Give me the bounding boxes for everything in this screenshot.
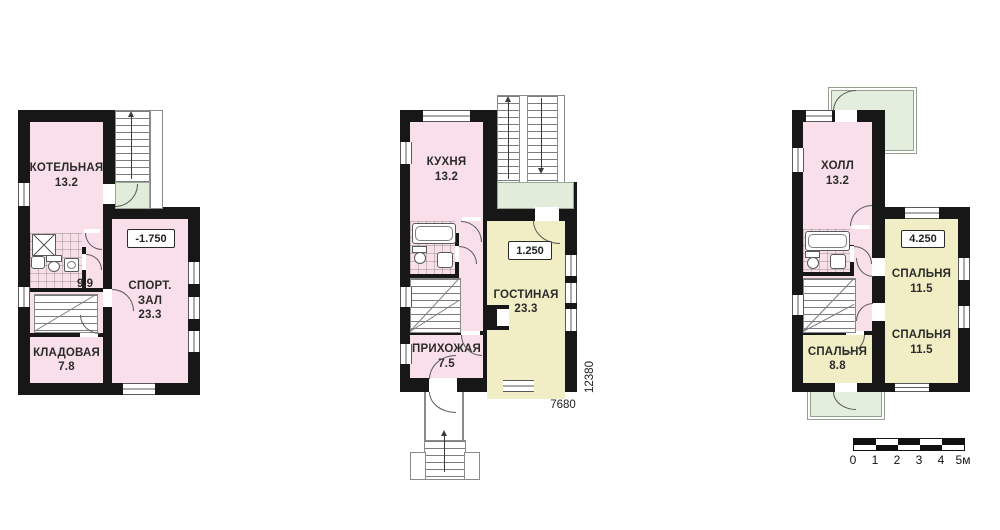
doorway — [103, 184, 115, 204]
room-storage: КЛАДОВАЯ 7.8 — [30, 337, 103, 383]
arrow-down-icon — [538, 168, 544, 174]
doorway — [103, 289, 112, 307]
bathtub-inner — [808, 234, 847, 248]
room-label: ХОЛЛ — [821, 159, 854, 173]
stair-arrow — [508, 102, 509, 179]
stair-arrow — [541, 98, 542, 168]
window — [18, 183, 30, 206]
scale-bar-row — [854, 445, 964, 451]
toilet-bowl-icon — [807, 257, 819, 269]
porch-wing — [410, 452, 426, 480]
fireplace-opening — [497, 309, 509, 326]
room-area: 23.3 — [514, 302, 537, 316]
room-area: 13.2 — [435, 170, 458, 184]
window — [565, 283, 577, 303]
drain-dot — [67, 261, 76, 269]
scale-tick-label: 2 — [886, 453, 908, 467]
bathtub-icon — [805, 231, 850, 251]
bathtub-inner — [415, 226, 453, 241]
room-area: 11.5 — [910, 343, 933, 357]
room-area: 7.8 — [58, 360, 75, 374]
room-label: КУХНЯ — [427, 155, 467, 169]
room-area: 13.2 — [826, 174, 849, 188]
window — [895, 383, 929, 392]
arrow-up-icon — [441, 430, 447, 436]
level-mark: 4.250 — [901, 230, 945, 248]
doorway — [535, 207, 559, 221]
level-mark: -1.750 — [127, 229, 175, 248]
scale-tick-label: 5м — [952, 453, 974, 467]
window — [958, 306, 970, 328]
stair-arrow — [131, 117, 132, 179]
scale-tick-label: 1 — [864, 453, 886, 467]
window — [400, 287, 412, 307]
stair-arrow — [444, 436, 445, 472]
toilet-bowl-icon — [414, 252, 426, 264]
stairs-up-icon — [497, 95, 521, 184]
window — [905, 207, 939, 219]
room-area: 9.9 — [60, 277, 110, 291]
dimension-width: 7680 — [540, 399, 586, 411]
scale-tick-label: 3 — [908, 453, 930, 467]
window — [958, 258, 970, 280]
doorway — [872, 303, 885, 321]
doorway — [872, 258, 885, 276]
shower-icon — [32, 234, 56, 256]
window — [565, 255, 577, 276]
scale-bar — [853, 438, 965, 451]
doorway — [429, 378, 457, 392]
sink-icon — [830, 254, 846, 269]
floor-plans-canvas: КОТЕЛЬНАЯ 13.2 9.9 КЛАДОВАЯ 7.8 СПОРТ. З… — [0, 0, 1000, 530]
sink-icon — [437, 252, 453, 268]
porch-steps-icon — [424, 440, 466, 480]
doorway — [835, 383, 857, 392]
room-label: СПОРТ. — [128, 279, 171, 293]
doorway — [835, 110, 857, 122]
floor-drain-icon — [64, 258, 79, 272]
room-label: СПАЛЬНЯ — [892, 267, 951, 281]
sink-icon — [31, 256, 45, 269]
window — [792, 148, 804, 172]
room-label: ГОСТИНАЯ — [493, 288, 558, 302]
dimension-height: 12380 — [584, 361, 596, 393]
level-mark: 1.250 — [508, 241, 552, 260]
window — [565, 309, 577, 331]
window — [400, 142, 412, 164]
arrow-up-icon — [505, 96, 511, 102]
window — [503, 380, 534, 392]
window — [792, 295, 804, 315]
porch-wall — [424, 392, 426, 442]
arrow-up-icon — [128, 111, 134, 117]
stairs-up-icon — [115, 110, 150, 184]
toilet-bowl-icon — [48, 261, 60, 272]
window — [18, 287, 30, 307]
window — [423, 110, 470, 122]
room-area: 13.2 — [55, 176, 78, 190]
stair-side-wall — [150, 110, 163, 209]
window — [400, 344, 412, 364]
room-area: 11.5 — [910, 282, 933, 296]
window — [123, 383, 155, 395]
porch-wall — [462, 392, 464, 442]
window — [806, 110, 832, 122]
scale-tick-label: 0 — [842, 453, 864, 467]
room-area: 8.8 — [829, 359, 846, 373]
room-area: 23.3 — [138, 308, 161, 322]
door-arc — [429, 392, 456, 413]
stair-landing — [497, 182, 574, 209]
window — [188, 262, 200, 284]
scale-tick-label: 4 — [930, 453, 952, 467]
room-label: КОТЕЛЬНАЯ — [30, 161, 104, 175]
bathtub-icon — [412, 223, 456, 244]
room-bedroom-bottom: СПАЛЬНЯ 11.5 — [885, 302, 958, 383]
room-label: ЗАЛ — [138, 294, 162, 308]
window — [188, 297, 200, 319]
window — [188, 331, 200, 352]
room-label: СПАЛЬНЯ — [892, 328, 951, 342]
porch-wing — [464, 452, 480, 480]
room-label: КЛАДОВАЯ — [33, 346, 100, 360]
stair-side-wall — [557, 95, 565, 184]
